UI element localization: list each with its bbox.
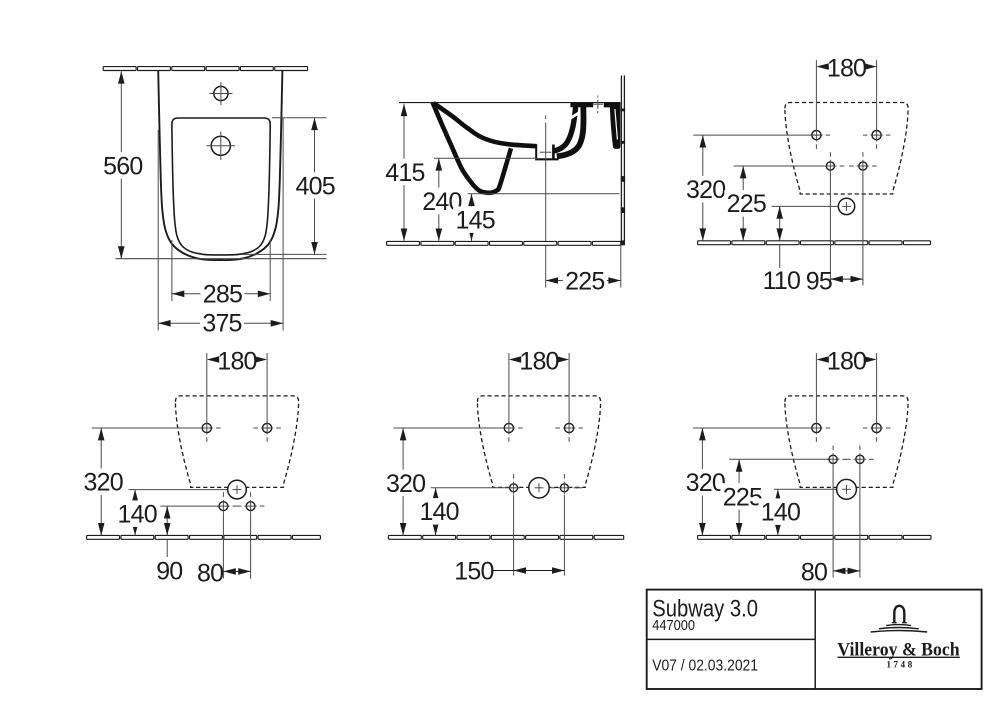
svg-text:180: 180: [519, 348, 558, 376]
svg-text:150: 150: [454, 558, 493, 586]
svg-text:180: 180: [217, 348, 256, 376]
svg-text:140: 140: [118, 501, 157, 529]
svg-text:320: 320: [686, 469, 725, 497]
svg-text:110: 110: [763, 267, 800, 295]
svg-text:320: 320: [386, 470, 425, 498]
svg-text:225: 225: [727, 190, 766, 218]
svg-text:80: 80: [801, 559, 827, 587]
svg-text:1748: 1748: [886, 659, 914, 669]
svg-text:80: 80: [197, 559, 223, 587]
svg-text:415: 415: [385, 159, 424, 187]
svg-text:90: 90: [156, 558, 182, 586]
svg-text:V07 / 02.03.2021: V07 / 02.03.2021: [652, 658, 758, 675]
svg-text:95: 95: [806, 267, 832, 295]
svg-text:225: 225: [723, 483, 762, 511]
svg-text:405: 405: [296, 172, 335, 200]
svg-text:225: 225: [565, 267, 604, 295]
svg-text:375: 375: [202, 309, 241, 337]
svg-text:320: 320: [84, 469, 123, 497]
svg-text:447000: 447000: [652, 618, 695, 634]
svg-text:145: 145: [456, 207, 495, 235]
svg-text:140: 140: [419, 498, 458, 526]
svg-text:560: 560: [103, 152, 142, 180]
svg-text:180: 180: [827, 55, 866, 83]
svg-text:285: 285: [203, 280, 242, 308]
svg-text:320: 320: [686, 176, 725, 204]
svg-text:180: 180: [827, 348, 866, 376]
svg-text:140: 140: [761, 499, 800, 527]
